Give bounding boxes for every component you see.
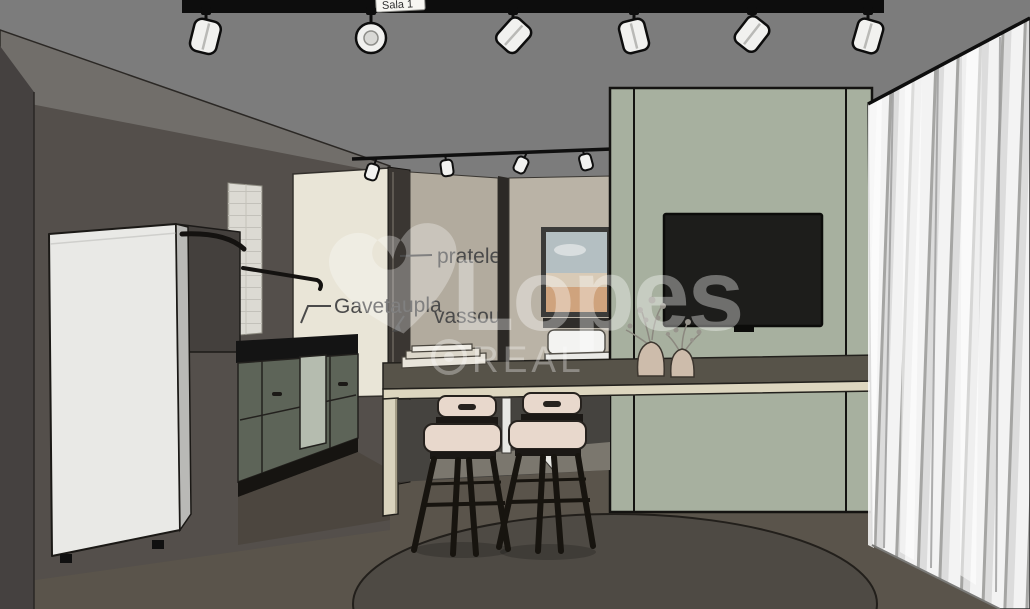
fridge-foot [152, 540, 164, 549]
drawer-handle [338, 382, 348, 386]
curtains [868, 18, 1030, 609]
room-tag-label: Sala 1 [382, 0, 414, 12]
apartment-render: pratele Gaveta upla vassou [0, 0, 1030, 609]
drawer-handle [272, 392, 282, 396]
watermark-subbrand: REAL [472, 339, 585, 380]
light-track-bar [182, 0, 884, 13]
watermark-brand: Lopes [452, 238, 742, 352]
refrigerator [49, 224, 191, 563]
fridge-foot [60, 554, 72, 563]
stool-shadow [500, 544, 596, 560]
stool-shadow [414, 542, 510, 558]
watermark-ring-dot [444, 352, 454, 362]
room-tag: Sala 1 [375, 0, 425, 12]
cabinet-end-panel [300, 355, 326, 449]
left-wall [0, 46, 34, 609]
